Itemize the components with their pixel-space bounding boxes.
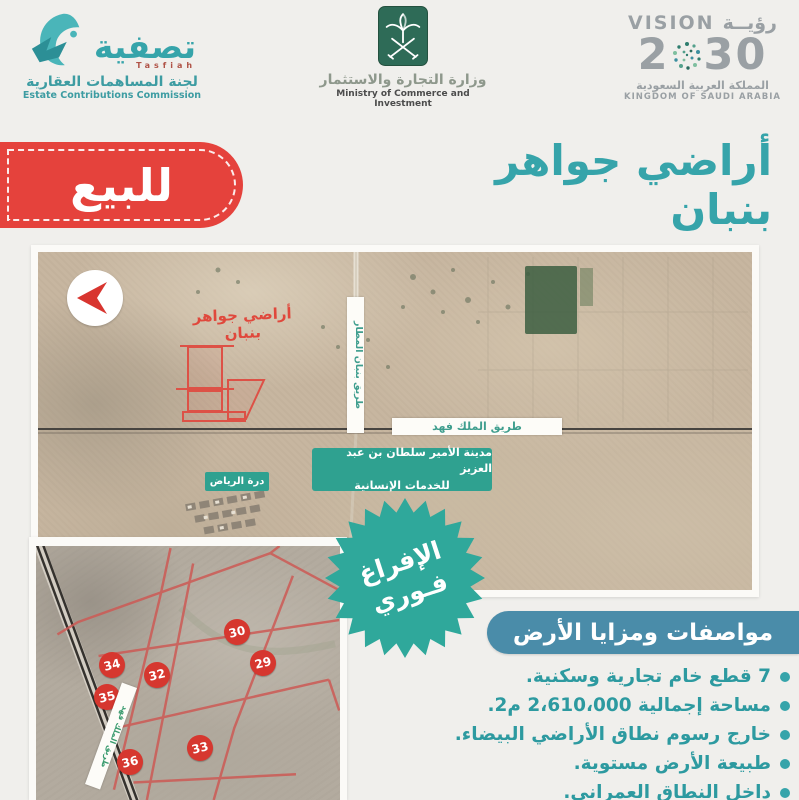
for-sale-badge: للبيع bbox=[0, 142, 243, 228]
spec-item: داخل النطاق العمراني. bbox=[440, 778, 790, 800]
ministry-name-ar: وزارة التجارة والاستثمار bbox=[318, 72, 488, 88]
area-label: أراضي جواهر بنبان bbox=[184, 304, 300, 344]
ministry-logo: وزارة التجارة والاستثمار Ministry of Com… bbox=[318, 6, 488, 109]
bullet-dot-icon bbox=[780, 672, 790, 682]
ministry-name-en: Ministry of Commerce and Investment bbox=[318, 89, 488, 109]
tasfiah-brand-ar: تصفية bbox=[94, 30, 196, 63]
saudi-emblem-icon bbox=[378, 6, 428, 66]
land-plot-outline bbox=[176, 346, 264, 421]
poster-page: تصفية Tasfiah لجنة المساهمات العقارية Es… bbox=[0, 0, 799, 800]
bullet-dot-icon bbox=[780, 788, 790, 798]
north-arrow-icon bbox=[67, 270, 123, 326]
specs-list: 7 قطع خام تجارية وسكنية. مساحة إجمالية 2… bbox=[440, 662, 790, 800]
bullet-dot-icon bbox=[780, 730, 790, 740]
spec-item: 7 قطع خام تجارية وسكنية. bbox=[440, 662, 790, 691]
plots-map-frame bbox=[29, 537, 347, 800]
badge-stitch-border bbox=[7, 149, 236, 221]
spec-text: داخل النطاق العمراني. bbox=[563, 782, 771, 800]
road-label-banban-airport: طريق بنبان المطار bbox=[347, 297, 364, 433]
bullet-dot-icon bbox=[780, 759, 790, 769]
road-label-king-fahd: طريق الملك فهد bbox=[392, 418, 562, 435]
spec-text: طبيعة الأرض مستوية. bbox=[574, 753, 771, 774]
vision-country-ar: المملكة العربية السعودية bbox=[615, 79, 790, 92]
spec-text: مساحة إجمالية 2،610،000 م2. bbox=[488, 695, 771, 716]
tasfiah-commission-ar: لجنة المساهمات العقارية bbox=[22, 74, 202, 90]
spec-text: خارج رسوم نطاق الأراضي البيضاء. bbox=[455, 724, 771, 745]
vision-2030-logo: VISION رؤيــة 2 30 المملكة العربية السعو… bbox=[615, 12, 790, 102]
spec-item: مساحة إجمالية 2،610،000 م2. bbox=[440, 691, 790, 720]
city-label-line1: مدينة الأمير سلطان بن عبد العزيز bbox=[312, 445, 492, 478]
vision-year: 2 30 bbox=[615, 34, 790, 77]
vision-year-suffix: 30 bbox=[704, 34, 768, 77]
plots-satellite-map bbox=[36, 546, 340, 800]
spec-text: 7 قطع خام تجارية وسكنية. bbox=[526, 666, 771, 687]
immediate-conveyance-ribbon: الإفراغ فـوري bbox=[324, 497, 486, 659]
vision-year-prefix: 2 bbox=[638, 34, 670, 77]
page-title: أراضي جواهر بنبان bbox=[380, 150, 772, 220]
spec-item: خارج رسوم نطاق الأراضي البيضاء. bbox=[440, 720, 790, 749]
prince-sultan-city-label: مدينة الأمير سلطان بن عبد العزيز للخدمات… bbox=[312, 448, 492, 491]
tasfiah-commission-en: Estate Contributions Commission bbox=[22, 90, 202, 101]
spec-item: طبيعة الأرض مستوية. bbox=[440, 749, 790, 778]
tasfiah-logo: تصفية Tasfiah لجنة المساهمات العقارية Es… bbox=[22, 8, 202, 101]
vision-dotted-emblem-icon bbox=[670, 39, 704, 73]
vision-country-en: KINGDOM OF SAUDI ARABIA bbox=[615, 92, 790, 102]
durrat-riyadh-label: درة الرياض bbox=[205, 472, 269, 491]
bullet-dot-icon bbox=[780, 701, 790, 711]
tasfiah-icon bbox=[28, 8, 90, 70]
specs-header: مواصفات ومزايا الأرض bbox=[487, 611, 799, 654]
